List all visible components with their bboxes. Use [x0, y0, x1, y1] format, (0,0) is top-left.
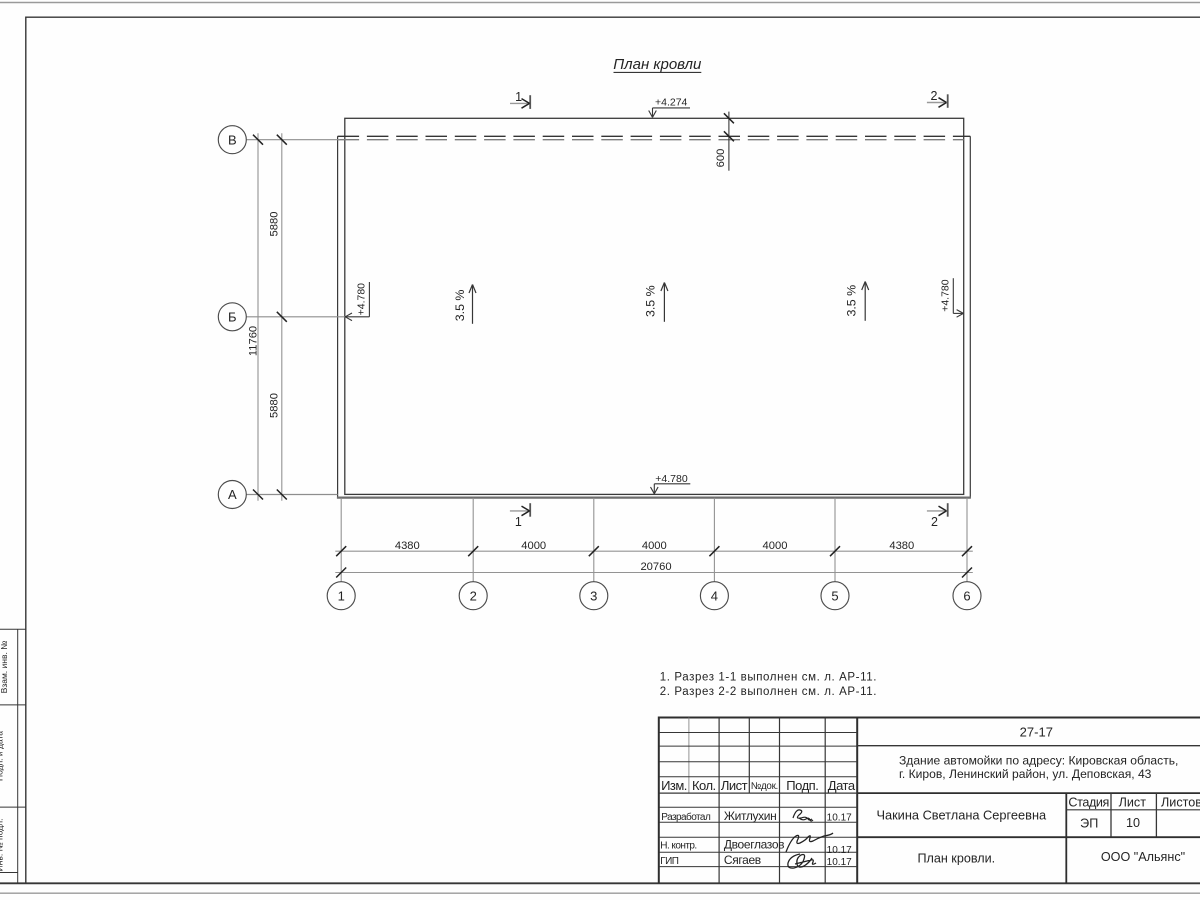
svg-text:10.17: 10.17	[827, 845, 852, 856]
svg-text:ЭП: ЭП	[1080, 817, 1098, 831]
svg-text:600: 600	[715, 149, 727, 168]
svg-text:Подп.: Подп.	[786, 778, 818, 793]
svg-text:Инв. № подл.: Инв. № подл.	[0, 819, 5, 872]
svg-text:2. Разрез 2-2 выполнен см. л.: 2. Разрез 2-2 выполнен см. л. АР-11.	[660, 686, 877, 698]
svg-text:1: 1	[515, 515, 522, 529]
svg-text:1. Разрез 1-1 выполнен см. л.: 1. Разрез 1-1 выполнен см. л. АР-11.	[660, 672, 877, 684]
svg-text:ООО "Альянс": ООО "Альянс"	[1101, 850, 1185, 864]
svg-text:2: 2	[931, 89, 938, 103]
svg-text:2: 2	[931, 515, 938, 529]
svg-text:А: А	[228, 487, 237, 502]
svg-text:2: 2	[470, 588, 477, 603]
svg-text:4380: 4380	[889, 540, 914, 552]
svg-text:3.5 %: 3.5 %	[453, 290, 467, 322]
svg-text:План кровли.: План кровли.	[917, 851, 995, 865]
svg-text:+4.780: +4.780	[655, 473, 688, 485]
svg-text:4380: 4380	[395, 540, 420, 552]
svg-text:Взам. инв. №: Взам. инв. №	[0, 641, 9, 694]
svg-text:Стадия: Стадия	[1068, 796, 1109, 810]
svg-text:Чакина Светлана Сергеевна: Чакина Светлана Сергеевна	[876, 808, 1047, 823]
svg-text:+4.780: +4.780	[355, 283, 367, 316]
svg-text:Листов: Листов	[1161, 796, 1200, 810]
svg-text:+4.780: +4.780	[940, 279, 952, 312]
svg-text:Здание автомойки по адресу: Ки: Здание автомойки по адресу: Кировская об…	[899, 753, 1178, 767]
svg-text:4000: 4000	[521, 540, 546, 552]
svg-text:5: 5	[831, 588, 838, 603]
svg-text:5880: 5880	[268, 212, 280, 237]
svg-text:1: 1	[338, 588, 345, 603]
svg-text:4000: 4000	[642, 540, 667, 552]
svg-text:3.5 %: 3.5 %	[844, 285, 858, 317]
svg-text:20760: 20760	[640, 561, 671, 573]
svg-text:г. Киров, Ленинский район, ул.: г. Киров, Ленинский район, ул. Деповская…	[899, 767, 1152, 781]
svg-text:4: 4	[711, 588, 718, 603]
svg-text:10: 10	[1126, 816, 1140, 830]
svg-text:5880: 5880	[268, 393, 280, 418]
svg-text:4000: 4000	[763, 540, 788, 552]
svg-text:Житлухин: Житлухин	[724, 809, 777, 823]
svg-text:№док.: №док.	[751, 781, 778, 792]
svg-text:Лист: Лист	[721, 778, 748, 793]
svg-text:В: В	[228, 132, 237, 147]
svg-text:Н. контр.: Н. контр.	[660, 841, 696, 852]
svg-text:27-17: 27-17	[1020, 725, 1053, 740]
svg-text:План кровли: План кровли	[613, 56, 702, 73]
svg-text:Разработал: Разработал	[661, 811, 711, 823]
svg-text:6: 6	[963, 588, 970, 603]
svg-text:ГИП: ГИП	[660, 856, 679, 867]
svg-text:Б: Б	[228, 310, 237, 325]
svg-text:+4.274: +4.274	[655, 97, 688, 109]
svg-text:Подп. и дата: Подп. и дата	[0, 731, 5, 781]
svg-text:Изм.: Изм.	[661, 778, 687, 793]
svg-text:Кол.: Кол.	[692, 778, 716, 793]
svg-text:Двоеглазов: Двоеглазов	[724, 837, 784, 851]
svg-text:Лист: Лист	[1119, 796, 1147, 810]
svg-text:Дата: Дата	[828, 778, 856, 793]
svg-text:10.17: 10.17	[827, 812, 852, 823]
svg-text:1: 1	[515, 90, 522, 104]
svg-text:3.5 %: 3.5 %	[644, 285, 658, 317]
svg-text:3: 3	[590, 588, 597, 603]
svg-text:10.17: 10.17	[827, 857, 852, 868]
svg-text:11760: 11760	[247, 326, 259, 356]
svg-text:Сягаев: Сягаев	[724, 853, 761, 867]
